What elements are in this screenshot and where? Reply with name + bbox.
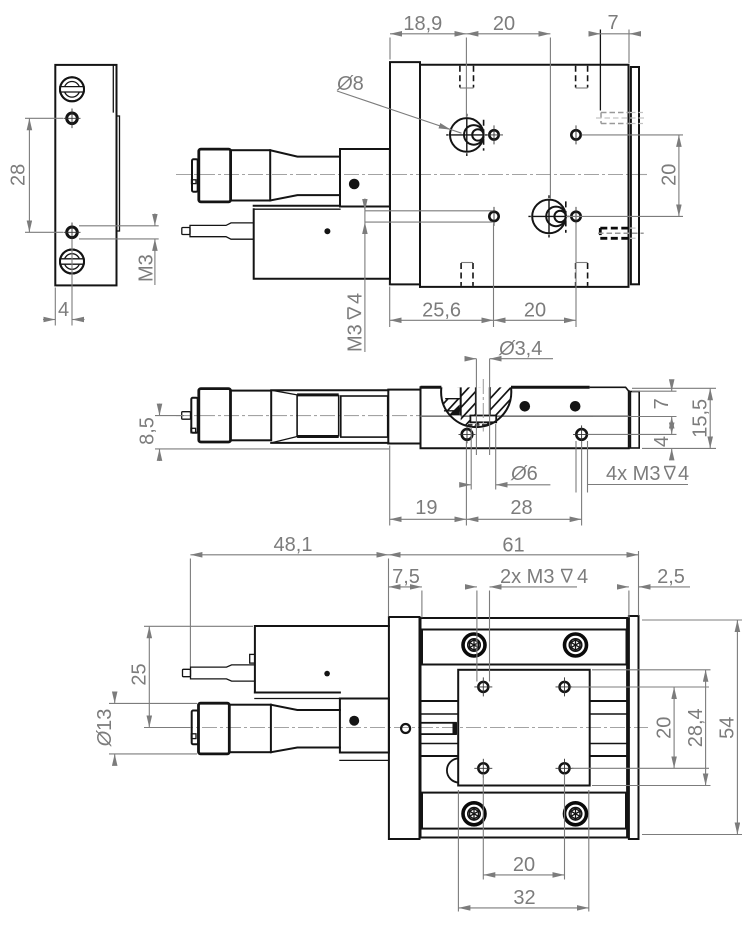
svg-text:20: 20 bbox=[659, 164, 681, 186]
svg-text:4: 4 bbox=[345, 293, 367, 304]
svg-text:2,5: 2,5 bbox=[657, 566, 685, 588]
svg-text:48,1: 48,1 bbox=[274, 534, 313, 556]
svg-text:25,6: 25,6 bbox=[422, 299, 461, 321]
svg-text:4x M3: 4x M3 bbox=[606, 463, 660, 485]
svg-text:25: 25 bbox=[129, 663, 151, 685]
svg-text:7: 7 bbox=[651, 398, 673, 409]
svg-text:2x M3: 2x M3 bbox=[500, 566, 554, 588]
svg-text:32: 32 bbox=[513, 887, 535, 909]
svg-text:Ø8: Ø8 bbox=[336, 73, 364, 95]
svg-text:M3: M3 bbox=[136, 254, 158, 282]
svg-text:20: 20 bbox=[524, 299, 546, 321]
svg-text:20: 20 bbox=[493, 13, 515, 35]
svg-text:Ø6: Ø6 bbox=[510, 463, 538, 485]
svg-text:28,4: 28,4 bbox=[685, 708, 707, 747]
svg-text:20: 20 bbox=[654, 717, 676, 739]
svg-text:15,5: 15,5 bbox=[690, 399, 712, 438]
svg-text:4: 4 bbox=[58, 299, 69, 321]
svg-text:61: 61 bbox=[502, 535, 524, 557]
svg-text:7,5: 7,5 bbox=[392, 566, 420, 588]
svg-text:28: 28 bbox=[8, 164, 30, 186]
svg-text:7: 7 bbox=[607, 12, 618, 34]
svg-text:28: 28 bbox=[510, 497, 532, 519]
svg-text:18,9: 18,9 bbox=[403, 13, 442, 35]
svg-text:20: 20 bbox=[513, 854, 535, 876]
svg-text:4: 4 bbox=[651, 436, 673, 447]
svg-text:4: 4 bbox=[577, 566, 588, 588]
svg-text:M3: M3 bbox=[345, 324, 367, 352]
svg-text:4: 4 bbox=[678, 463, 689, 485]
svg-text:19: 19 bbox=[415, 497, 437, 519]
svg-text:Ø3,4: Ø3,4 bbox=[498, 338, 542, 360]
svg-text:Ø13: Ø13 bbox=[94, 709, 116, 748]
svg-text:54: 54 bbox=[717, 717, 739, 739]
svg-text:8,5: 8,5 bbox=[137, 417, 159, 445]
